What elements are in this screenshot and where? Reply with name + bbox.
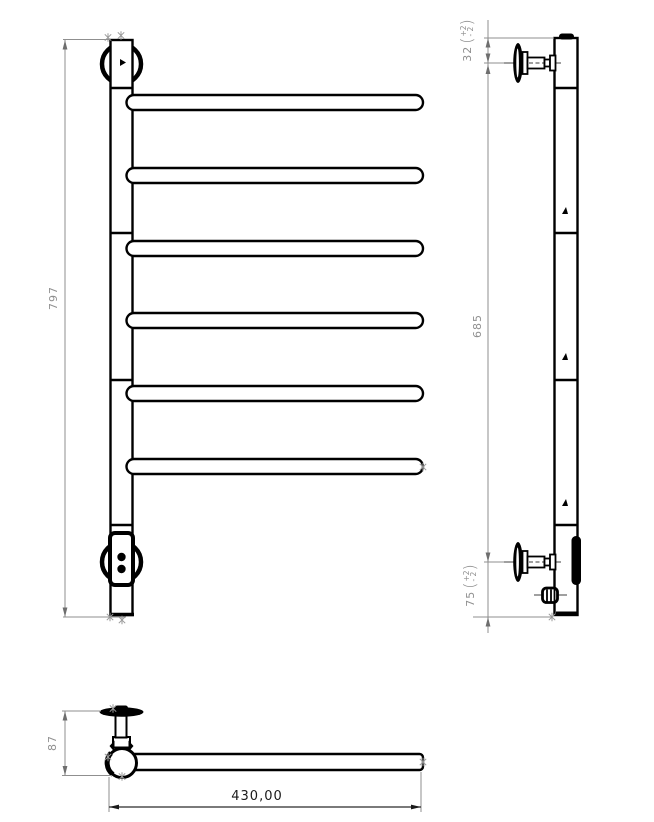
top-view [100,704,427,780]
tolerance-minus: - 2 [467,25,475,36]
towel-bar-5 [127,386,424,401]
towel-bar-2 [127,168,424,183]
dim-text-bracket-spacing: 685 [470,306,484,346]
wall-flange-hub [115,706,128,711]
bottom-wall-bracket [504,542,561,582]
towel-bar-1 [127,95,424,110]
dim-side-lines [473,20,554,633]
drawing-canvas: 797 87 430,00 685 32 ( +2 - 2 ) 75 ( +2 … [0,0,654,822]
towel-bar-4 [127,313,424,328]
side-view [504,34,581,622]
dim-text-depth: 87 [45,723,59,763]
dim-value: 32 [461,46,474,62]
control-button-bottom [117,565,125,573]
top-wall-bracket [504,43,561,83]
bracket-shaft-top-view [116,715,127,738]
point-marker [118,31,124,39]
side-post [555,38,578,615]
dim-text-top-bracket-offset: 32 ( +2 - 2 ) [455,11,479,69]
tolerance-minus: - 2 [470,570,478,581]
paren-close: ) [459,18,475,25]
front-view [102,31,426,624]
dim-value: 75 [464,591,477,607]
tolerance: ( +2 - 2 ) [462,563,478,589]
control-button-top [117,553,125,561]
dim-text-bottom-bracket-offset: 75 ( +2 - 2 ) [458,556,482,614]
paren-open: ( [459,37,475,44]
towel-bar-3 [127,241,424,256]
bar-top-view [126,754,423,770]
towel-bars [127,95,424,474]
drawing-linework [0,0,654,822]
dim-text-overall-height: 797 [46,278,60,318]
side-post-top-cap [559,34,574,40]
point-marker [105,33,111,41]
paren-open: ( [462,582,478,589]
dim-text-rail-width: 430,00 [217,789,297,803]
tolerance: ( +2 - 2 ) [459,18,475,44]
towel-bar-6 [127,459,424,474]
control-panel-side [572,536,582,585]
dim-87-lines [62,711,112,776]
paren-close: ) [462,563,478,570]
